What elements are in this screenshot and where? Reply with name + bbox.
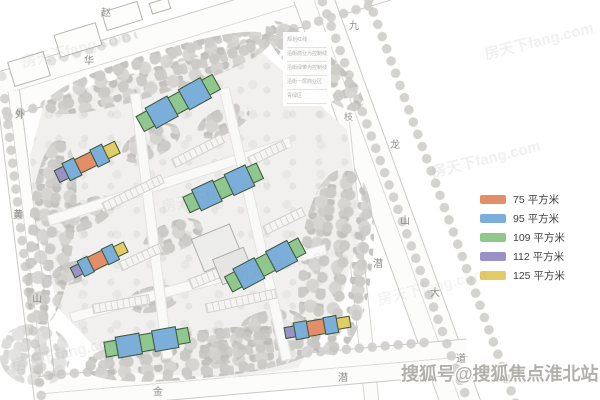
road-label-char: 龙 bbox=[390, 136, 400, 151]
road-label-char: 华 bbox=[84, 52, 94, 67]
sohu-watermark-text: 搜狐号@搜狐焦点淮北站 bbox=[401, 360, 599, 386]
road-label-char: 黄 bbox=[13, 206, 23, 221]
legend-label-75: 75 平方米 bbox=[513, 192, 559, 207]
legend-label-125: 125 平方米 bbox=[513, 268, 565, 283]
legend-label-95: 95 平方米 bbox=[513, 211, 559, 226]
legend-row-112: 112 平方米 bbox=[480, 251, 565, 262]
road-label-char: 赵 bbox=[101, 4, 111, 19]
site-plan-canvas: 规划红线沿街商业为控制线沿街绿带为控制线沿街一层商业区青绿区 枝 赵华九龙山大道… bbox=[0, 0, 600, 400]
legend-label-109: 109 平方米 bbox=[513, 230, 565, 245]
legend-swatch-109 bbox=[480, 233, 506, 242]
road-label-char: 潜 bbox=[373, 255, 383, 270]
legend-row-75: 75 平方米 bbox=[480, 194, 565, 205]
legend-label-112: 112 平方米 bbox=[513, 249, 564, 264]
road-label-char: 大 bbox=[430, 284, 440, 299]
legend-row-95: 95 平方米 bbox=[480, 213, 565, 224]
road-label-char: 山 bbox=[400, 212, 410, 227]
legend-swatch-125 bbox=[480, 271, 506, 280]
road-label-char: 金 bbox=[153, 383, 163, 398]
legend-swatch-95 bbox=[480, 214, 506, 223]
legend-row-125: 125 平方米 bbox=[480, 270, 565, 281]
road-label-char: 外 bbox=[15, 106, 25, 121]
legend-row-109: 109 平方米 bbox=[480, 232, 565, 243]
road-label-char: 九 bbox=[349, 17, 359, 32]
legend-swatch-75 bbox=[480, 195, 506, 204]
road-label-char: 山 bbox=[32, 290, 42, 305]
legend-swatch-112 bbox=[480, 252, 506, 261]
road-label-char: 潜 bbox=[338, 369, 348, 384]
unit-size-legend: 75 平方米 95 平方米 109 平方米 112 平方米 125 平方米 bbox=[480, 194, 565, 289]
